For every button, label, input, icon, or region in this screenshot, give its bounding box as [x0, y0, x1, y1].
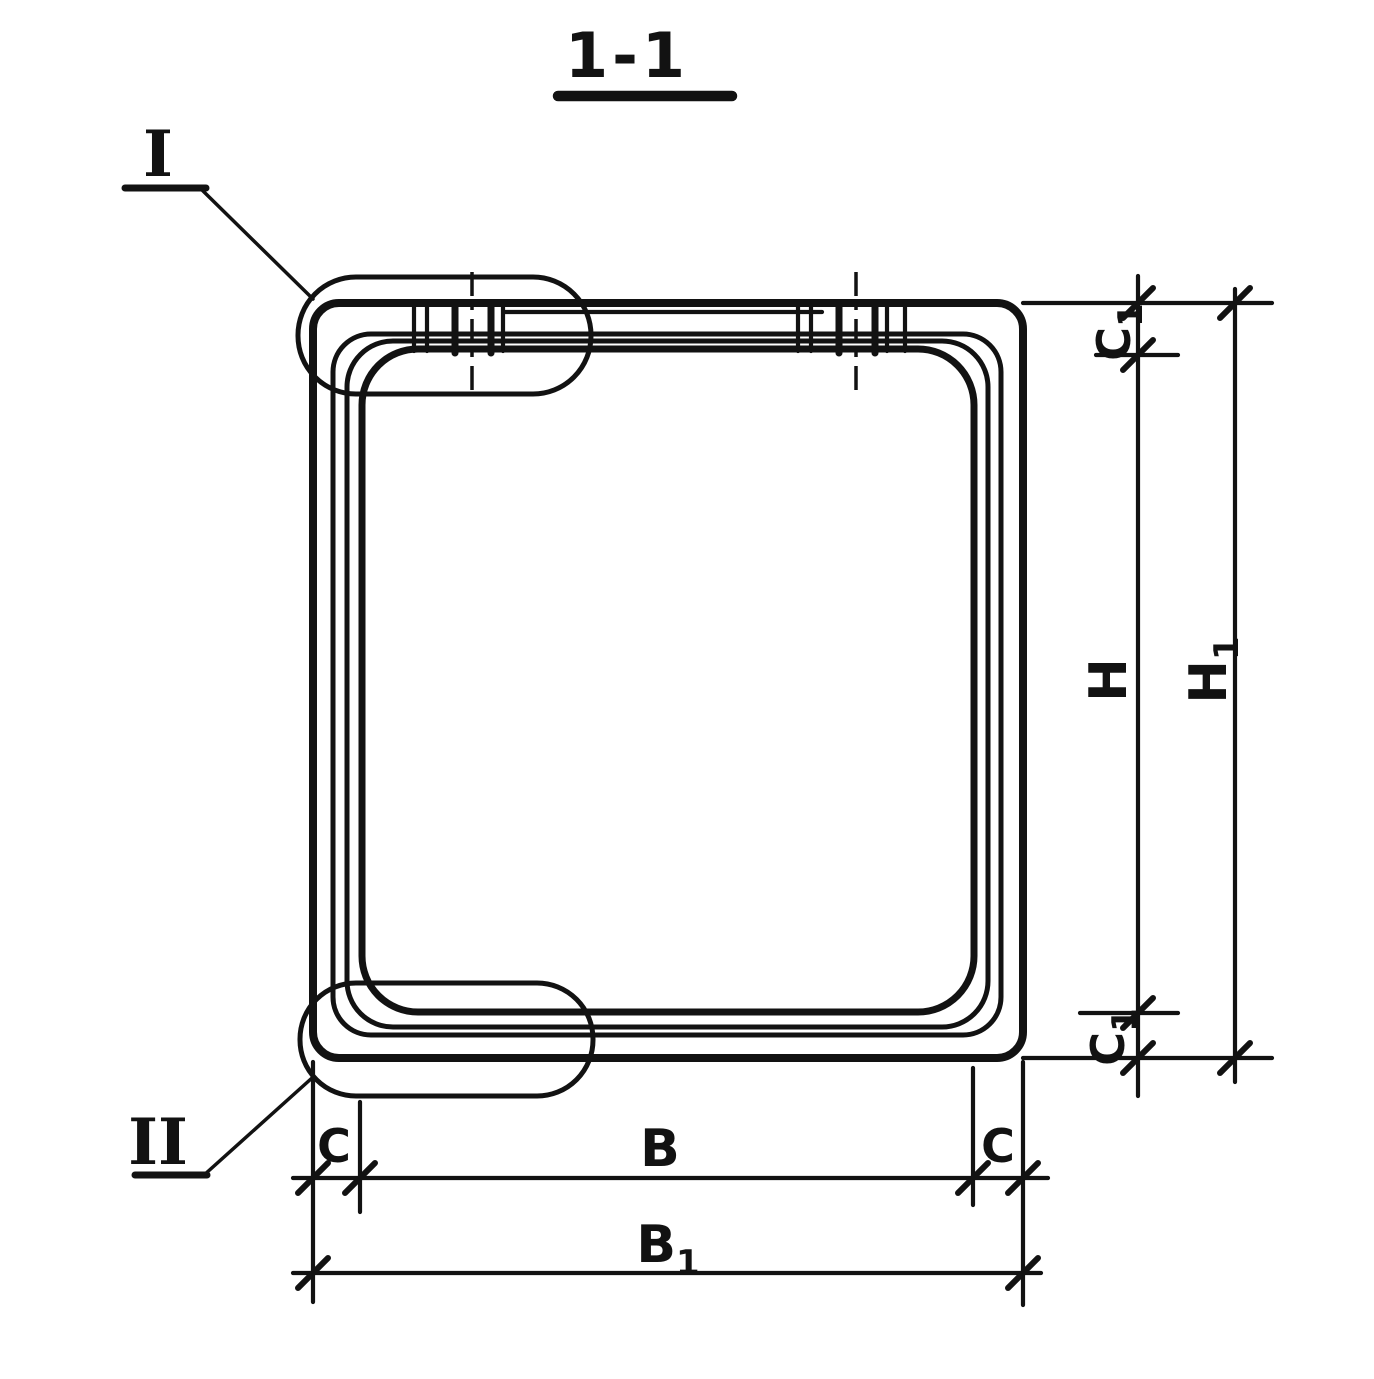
dimension-label-h: H	[1079, 658, 1139, 702]
dim-base: B	[636, 1215, 676, 1275]
detail-leader-i	[201, 189, 313, 299]
dim-base: B	[640, 1119, 680, 1179]
dim-base: C	[1081, 1032, 1135, 1066]
detail-circle-ii	[300, 983, 593, 1096]
dim-base: C	[1087, 327, 1141, 361]
section-drawing: 1-1 I II	[0, 0, 1374, 1379]
culvert-section-outlines	[313, 303, 1023, 1058]
box-middle-line-1	[333, 334, 1001, 1035]
lid-joint-left	[414, 272, 503, 399]
dimensions-right: C1 H C1 H1	[1023, 276, 1272, 1096]
dim-sub: 1	[1111, 303, 1151, 327]
dim-sub: 1	[676, 1243, 700, 1283]
dimension-label-c-left: C	[317, 1119, 351, 1173]
box-inner-face	[362, 349, 974, 1012]
detail-label-ii: II	[128, 1105, 188, 1180]
dimension-label-b: B	[640, 1119, 680, 1179]
dim-sub: 1	[1207, 636, 1247, 660]
box-middle-line-2	[347, 341, 988, 1027]
section-title: 1-1	[565, 19, 689, 92]
dimension-label-c-right: C	[981, 1119, 1015, 1173]
detail-label-i: I	[143, 117, 173, 192]
box-outer-face	[313, 303, 1023, 1058]
dim-base: H	[1079, 658, 1139, 702]
dimension-label-b1: B1	[636, 1215, 699, 1283]
title-block: 1-1	[558, 19, 732, 96]
detail-leader-ii	[204, 1078, 312, 1175]
dim-base: C	[317, 1119, 351, 1173]
dim-sub: 1	[1105, 1008, 1145, 1032]
dim-base: H	[1179, 660, 1239, 704]
dim-base: C	[981, 1119, 1015, 1173]
dimension-label-h1: H1	[1179, 636, 1247, 703]
